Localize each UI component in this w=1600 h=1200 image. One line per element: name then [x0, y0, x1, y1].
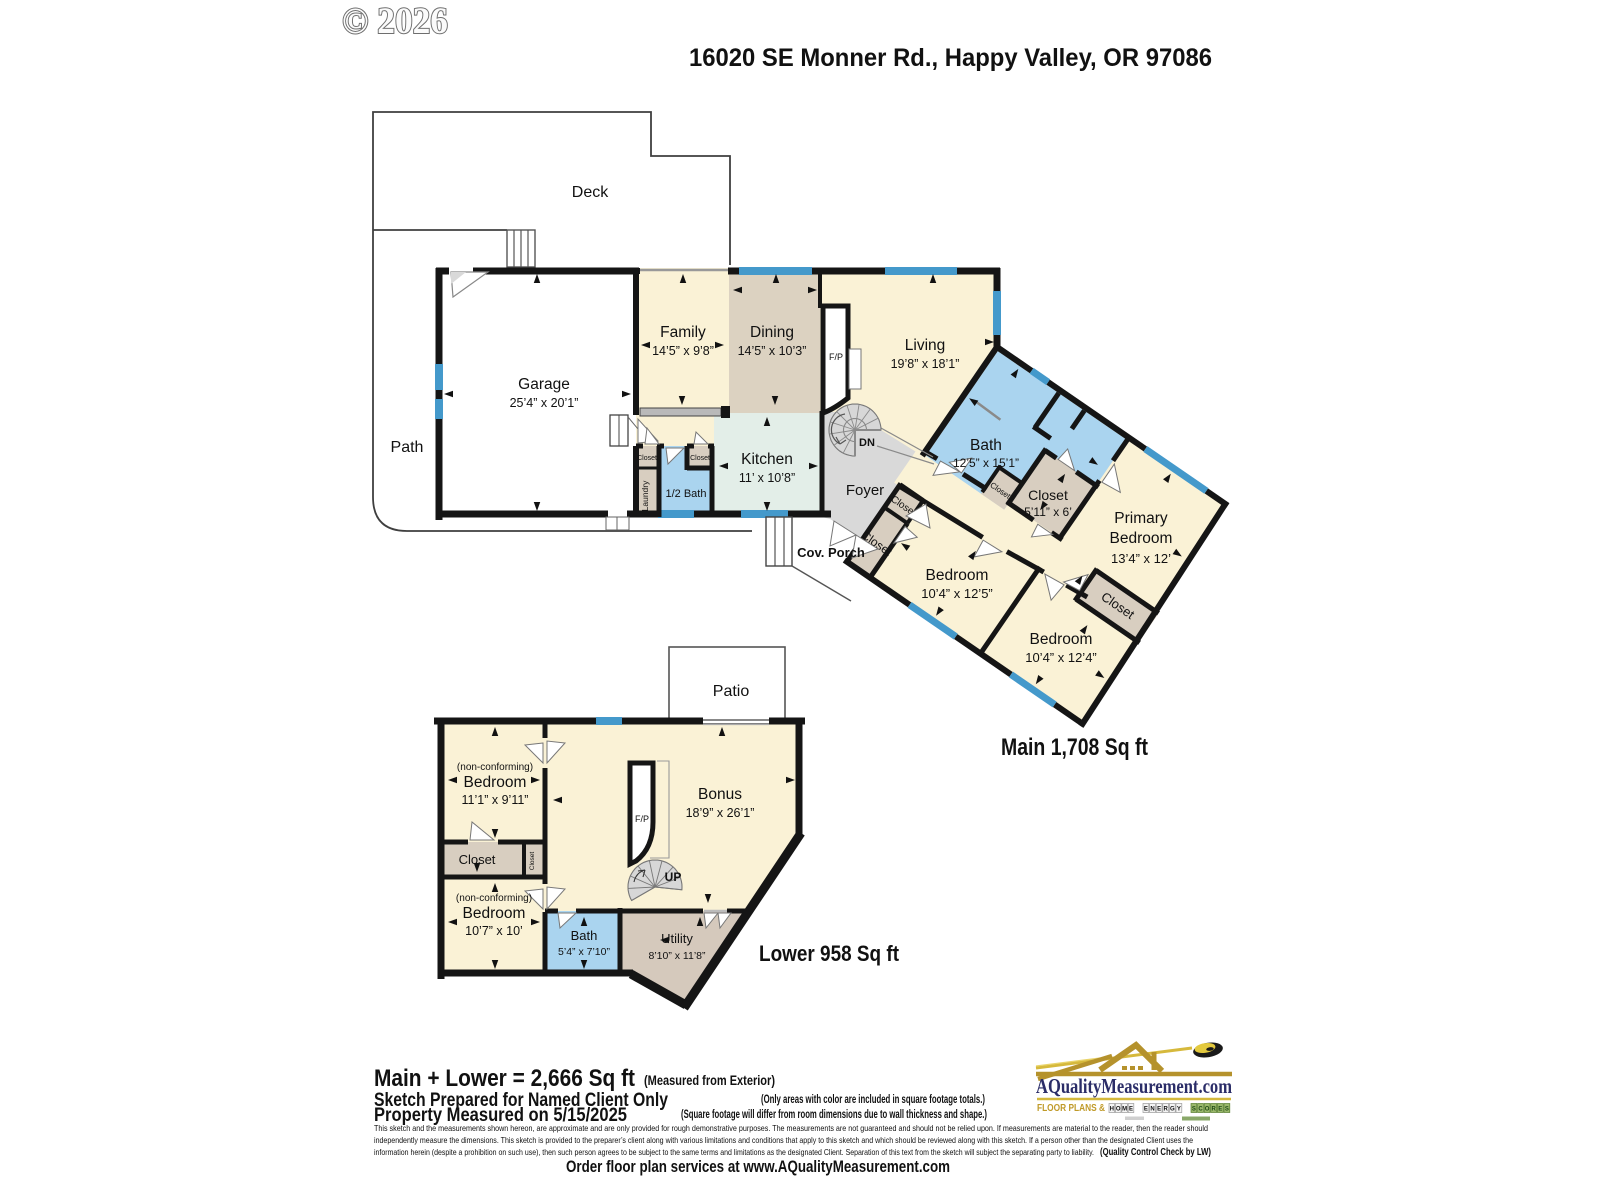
svg-text:S: S: [1192, 1107, 1196, 1113]
svg-text:© 2026: © 2026: [342, 1, 448, 42]
svg-text:independently measure the dime: independently measure the dimensions. Th…: [374, 1135, 1193, 1145]
svg-text:14’5” x 10’3”: 14’5” x 10’3”: [738, 344, 807, 358]
svg-text:12’5” x 15’1”: 12’5” x 15’1”: [953, 456, 1019, 470]
svg-text:E: E: [1157, 1107, 1161, 1113]
svg-text:Closet: Closet: [1028, 487, 1068, 503]
svg-text:Bath: Bath: [571, 928, 598, 943]
svg-text:Bedroom: Bedroom: [463, 905, 526, 922]
svg-text:UP: UP: [665, 870, 682, 884]
svg-text:Cov. Porch: Cov. Porch: [797, 545, 865, 560]
svg-text:18’9” x 26’1”: 18’9” x 26’1”: [686, 806, 755, 820]
svg-text:DN: DN: [859, 437, 875, 449]
svg-text:O: O: [1116, 1107, 1121, 1113]
svg-text:FLOOR PLANS &: FLOOR PLANS &: [1037, 1103, 1105, 1114]
svg-text:11’ x 10’8”: 11’ x 10’8”: [739, 471, 795, 485]
svg-text:Closet: Closet: [529, 852, 536, 871]
svg-text:Y: Y: [1177, 1107, 1181, 1113]
svg-text:Main + Lower = 2,666 Sq ft: Main + Lower = 2,666 Sq ft: [374, 1065, 635, 1092]
svg-text:Living: Living: [905, 337, 946, 354]
svg-text:5’11” x 6’: 5’11” x 6’: [1024, 505, 1072, 519]
svg-text:10’4” x 12’4”: 10’4” x 12’4”: [1025, 650, 1097, 665]
svg-text:Primary: Primary: [1114, 510, 1168, 527]
svg-text:Bedroom: Bedroom: [1110, 530, 1173, 547]
svg-text:Family: Family: [660, 324, 706, 341]
svg-text:(non-conforming): (non-conforming): [456, 893, 532, 904]
svg-text:Lower 958 Sq ft: Lower 958 Sq ft: [759, 941, 900, 966]
svg-text:R: R: [1164, 1107, 1169, 1113]
svg-text:16020 SE Monner Rd., Happy Val: 16020 SE Monner Rd., Happy Valley, OR 97…: [689, 44, 1212, 72]
svg-text:H: H: [1110, 1107, 1114, 1113]
svg-text:S: S: [1225, 1107, 1229, 1113]
svg-text:C: C: [1198, 1107, 1203, 1113]
svg-text:25’4” x 20’1”: 25’4” x 20’1”: [510, 396, 579, 410]
svg-text:(Only areas with color are inc: (Only areas with color are included in s…: [761, 1094, 985, 1106]
svg-text:(Square footage will differ fr: (Square footage will differ from room di…: [681, 1109, 987, 1121]
svg-text:(Quality Control Check by LW): (Quality Control Check by LW): [1100, 1146, 1211, 1158]
svg-text:1/2 Bath: 1/2 Bath: [666, 488, 707, 500]
svg-text:R: R: [1212, 1107, 1217, 1113]
svg-text:M: M: [1122, 1107, 1127, 1113]
svg-text:N: N: [1150, 1107, 1154, 1113]
svg-text:E: E: [1144, 1107, 1148, 1113]
svg-text:Bedroom: Bedroom: [926, 567, 989, 584]
svg-text:Closet: Closet: [690, 455, 710, 462]
svg-text:Laundry: Laundry: [640, 480, 650, 511]
svg-text:Garage: Garage: [518, 376, 570, 393]
svg-text:10’7” x 10’: 10’7” x 10’: [465, 924, 523, 938]
svg-text:Bath: Bath: [970, 437, 1002, 454]
svg-text:Bonus: Bonus: [698, 786, 742, 803]
svg-text:(non-conforming): (non-conforming): [457, 762, 533, 773]
svg-text:This sketch and the measuremen: This sketch and the measurements shown h…: [374, 1123, 1208, 1133]
svg-text:11’1” x 9’11”: 11’1” x 9’11”: [462, 793, 529, 807]
svg-text:13’4” x 12’: 13’4” x 12’: [1111, 551, 1171, 566]
svg-text:Deck: Deck: [572, 184, 609, 201]
svg-text:E: E: [1129, 1107, 1133, 1113]
svg-text:Bedroom: Bedroom: [1030, 631, 1093, 648]
svg-text:F/P: F/P: [829, 352, 843, 362]
svg-text:AQualityMeasurement.com: AQualityMeasurement.com: [1036, 1074, 1232, 1098]
svg-text:Bedroom: Bedroom: [464, 774, 527, 791]
svg-text:14’5” x 9’8”: 14’5” x 9’8”: [652, 344, 714, 358]
svg-text:information herein (despite a: information herein (despite a prohibitio…: [374, 1147, 1094, 1157]
svg-text:Path: Path: [391, 439, 424, 456]
svg-text:E: E: [1218, 1107, 1222, 1113]
svg-text:Order floor plan services at w: Order floor plan services at www.AQualit…: [566, 1158, 950, 1176]
svg-text:Kitchen: Kitchen: [741, 451, 793, 468]
svg-text:F/P: F/P: [635, 814, 649, 824]
svg-text:10’4” x 12’5”: 10’4” x 12’5”: [921, 586, 993, 601]
svg-text:G: G: [1170, 1107, 1175, 1113]
svg-text:Closet: Closet: [637, 455, 657, 462]
svg-text:Foyer: Foyer: [846, 482, 884, 499]
svg-text:Dining: Dining: [750, 324, 794, 341]
svg-text:8’10” x 11’8”: 8’10” x 11’8”: [648, 950, 706, 962]
svg-text:5’4” x 7’10”: 5’4” x 7’10”: [558, 946, 610, 958]
svg-text:(Measured from Exterior): (Measured from Exterior): [644, 1073, 775, 1088]
svg-text:19’8” x 18’1”: 19’8” x 18’1”: [891, 357, 960, 371]
svg-text:Patio: Patio: [713, 683, 750, 700]
svg-text:O: O: [1205, 1107, 1210, 1113]
svg-text:Main 1,708 Sq ft: Main 1,708 Sq ft: [1001, 734, 1148, 761]
